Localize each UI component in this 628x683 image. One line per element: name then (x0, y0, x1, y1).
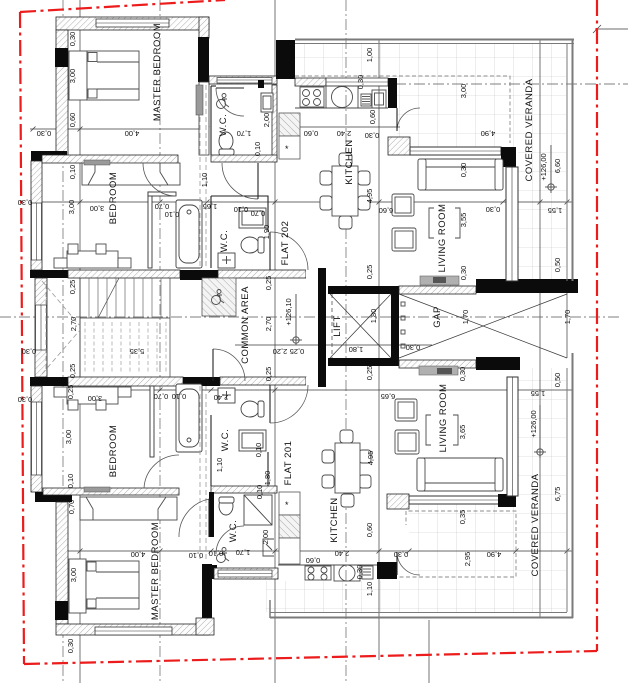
svg-text:0,10: 0,10 (172, 392, 187, 401)
svg-text:BEDROOM: BEDROOM (108, 172, 119, 225)
svg-text:0,10: 0,10 (66, 474, 75, 489)
svg-text:LIVING ROOM: LIVING ROOM (437, 204, 448, 273)
svg-text:0,70: 0,70 (67, 500, 76, 515)
svg-text:MASTER BEDROOM: MASTER BEDROOM (150, 522, 161, 620)
svg-text:*: * (285, 500, 289, 510)
svg-text:3,00: 3,00 (90, 204, 105, 213)
svg-text:2,95: 2,95 (463, 552, 472, 567)
svg-text:5,35: 5,35 (130, 347, 145, 356)
svg-text:0,30: 0,30 (459, 266, 468, 281)
svg-text:0,30: 0,30 (355, 565, 364, 580)
svg-text:4,90: 4,90 (481, 129, 496, 138)
svg-text:+126,00: +126,00 (529, 410, 538, 437)
svg-text:0,50: 0,50 (553, 258, 562, 273)
svg-text:1,10: 1,10 (215, 458, 224, 473)
svg-text:0,30: 0,30 (68, 32, 77, 47)
svg-text:KITCHEN: KITCHEN (329, 497, 340, 542)
svg-text:1,90: 1,90 (262, 225, 271, 240)
svg-text:6,60: 6,60 (553, 159, 562, 174)
svg-text:0,25: 0,25 (66, 385, 75, 400)
svg-text:0,10: 0,10 (255, 485, 264, 500)
svg-text:0,10: 0,10 (68, 165, 77, 180)
svg-text:0,10: 0,10 (209, 549, 224, 558)
svg-text:0,25: 0,25 (68, 280, 77, 295)
svg-text:0,30: 0,30 (486, 205, 501, 214)
svg-text:0,25: 0,25 (365, 366, 374, 381)
svg-text:2,70: 2,70 (69, 317, 78, 332)
svg-text:FLAT 201: FLAT 201 (283, 441, 294, 486)
svg-text:0,30: 0,30 (365, 131, 380, 140)
svg-text:3,65: 3,65 (458, 425, 467, 440)
svg-text:0,10: 0,10 (254, 443, 263, 458)
svg-text:3,00: 3,00 (88, 394, 103, 403)
svg-text:6,60: 6,60 (379, 206, 394, 215)
svg-text:4,95: 4,95 (365, 189, 374, 204)
svg-text:2,00: 2,00 (262, 113, 271, 128)
svg-text:1,80: 1,80 (369, 309, 378, 324)
svg-text:6,75: 6,75 (553, 487, 562, 502)
svg-text:0,30: 0,30 (459, 163, 468, 178)
svg-text:1,55: 1,55 (531, 389, 546, 398)
svg-text:COVERED VERANDA: COVERED VERANDA (524, 78, 535, 181)
svg-text:0,30: 0,30 (18, 198, 33, 207)
svg-text:3,00: 3,00 (64, 430, 73, 445)
svg-text:1,10: 1,10 (200, 173, 209, 188)
svg-text:0,60: 0,60 (68, 113, 77, 128)
svg-text:+126,10: +126,10 (284, 298, 293, 325)
svg-text:0,30: 0,30 (66, 639, 75, 654)
svg-text:0,50: 0,50 (553, 373, 562, 388)
svg-text:0,30: 0,30 (356, 75, 365, 90)
svg-text:1,70: 1,70 (237, 129, 252, 138)
svg-text:0,70: 0,70 (155, 202, 170, 211)
svg-text:0,60: 0,60 (306, 556, 321, 565)
svg-text:0,10: 0,10 (165, 210, 180, 219)
svg-text:W.C.: W.C. (218, 114, 229, 137)
svg-text:6,65: 6,65 (381, 392, 396, 401)
svg-text:2,40: 2,40 (335, 549, 350, 558)
svg-text:0,25: 0,25 (264, 276, 273, 291)
svg-text:+126,00: +126,00 (539, 153, 548, 180)
svg-text:3,00: 3,00 (67, 200, 76, 215)
svg-text:KITCHEN: KITCHEN (344, 139, 355, 184)
svg-text:4,95: 4,95 (366, 451, 375, 466)
svg-text:0,25: 0,25 (68, 364, 77, 379)
svg-text:3,00: 3,00 (68, 69, 77, 84)
svg-text:FLAT 202: FLAT 202 (280, 221, 291, 266)
svg-text:W.C.: W.C. (228, 520, 239, 543)
svg-text:W.C.: W.C. (220, 429, 231, 452)
svg-text:1,65: 1,65 (203, 202, 218, 211)
svg-text:0,10: 0,10 (253, 142, 262, 157)
svg-text:0,25: 0,25 (264, 367, 273, 382)
svg-text:1,80: 1,80 (349, 345, 364, 354)
svg-text:4,00: 4,00 (125, 129, 140, 138)
svg-text:0,30: 0,30 (458, 367, 467, 382)
svg-text:3,00: 3,00 (459, 84, 468, 99)
svg-text:0,60: 0,60 (368, 110, 377, 125)
svg-text:1,00: 1,00 (365, 48, 374, 63)
svg-text:1,80: 1,80 (263, 471, 272, 486)
svg-text:0,70: 0,70 (154, 392, 169, 401)
svg-text:0,30: 0,30 (18, 395, 33, 404)
svg-text:3,55: 3,55 (459, 213, 468, 228)
svg-text:COVERED VERANDA: COVERED VERANDA (530, 473, 541, 576)
svg-text:3,00: 3,00 (69, 568, 78, 583)
svg-text:2,40: 2,40 (214, 393, 229, 402)
svg-text:BEDROOM: BEDROOM (108, 425, 119, 478)
svg-text:0,30: 0,30 (37, 129, 52, 138)
svg-text:0,70: 0,70 (251, 209, 266, 218)
svg-text:0,60: 0,60 (304, 129, 319, 138)
svg-text:2,40: 2,40 (337, 129, 352, 138)
svg-text:4,00: 4,00 (131, 550, 146, 559)
svg-text:0,30: 0,30 (394, 550, 409, 559)
svg-text:2,20: 2,20 (273, 347, 288, 356)
svg-text:2,70: 2,70 (264, 317, 273, 332)
svg-text:0,10: 0,10 (234, 205, 249, 214)
svg-text:LIVING ROOM: LIVING ROOM (438, 384, 449, 453)
svg-text:COMMON AREA: COMMON AREA (240, 286, 251, 364)
svg-text:1,10: 1,10 (365, 582, 374, 597)
svg-text:1,55: 1,55 (548, 206, 563, 215)
svg-text:MASTER BEDROOM: MASTER BEDROOM (152, 23, 163, 121)
svg-text:0,25: 0,25 (365, 265, 374, 280)
svg-text:0,25: 0,25 (290, 347, 305, 356)
svg-text:0,60: 0,60 (365, 523, 374, 538)
svg-text:W.C.: W.C. (219, 230, 230, 253)
svg-text:GAP: GAP (432, 306, 443, 328)
svg-text:0,35: 0,35 (458, 510, 467, 525)
svg-text:0,30: 0,30 (22, 347, 37, 356)
svg-text:2,00: 2,00 (261, 530, 270, 545)
svg-text:*: * (285, 144, 289, 154)
svg-text:LIFT: LIFT (332, 315, 343, 337)
svg-text:1,70: 1,70 (563, 310, 572, 325)
svg-text:0,30: 0,30 (406, 343, 421, 352)
svg-text:1,70: 1,70 (236, 548, 251, 557)
svg-text:1,70: 1,70 (461, 310, 470, 325)
svg-text:0,10: 0,10 (189, 551, 204, 560)
svg-text:4,90: 4,90 (487, 550, 502, 559)
